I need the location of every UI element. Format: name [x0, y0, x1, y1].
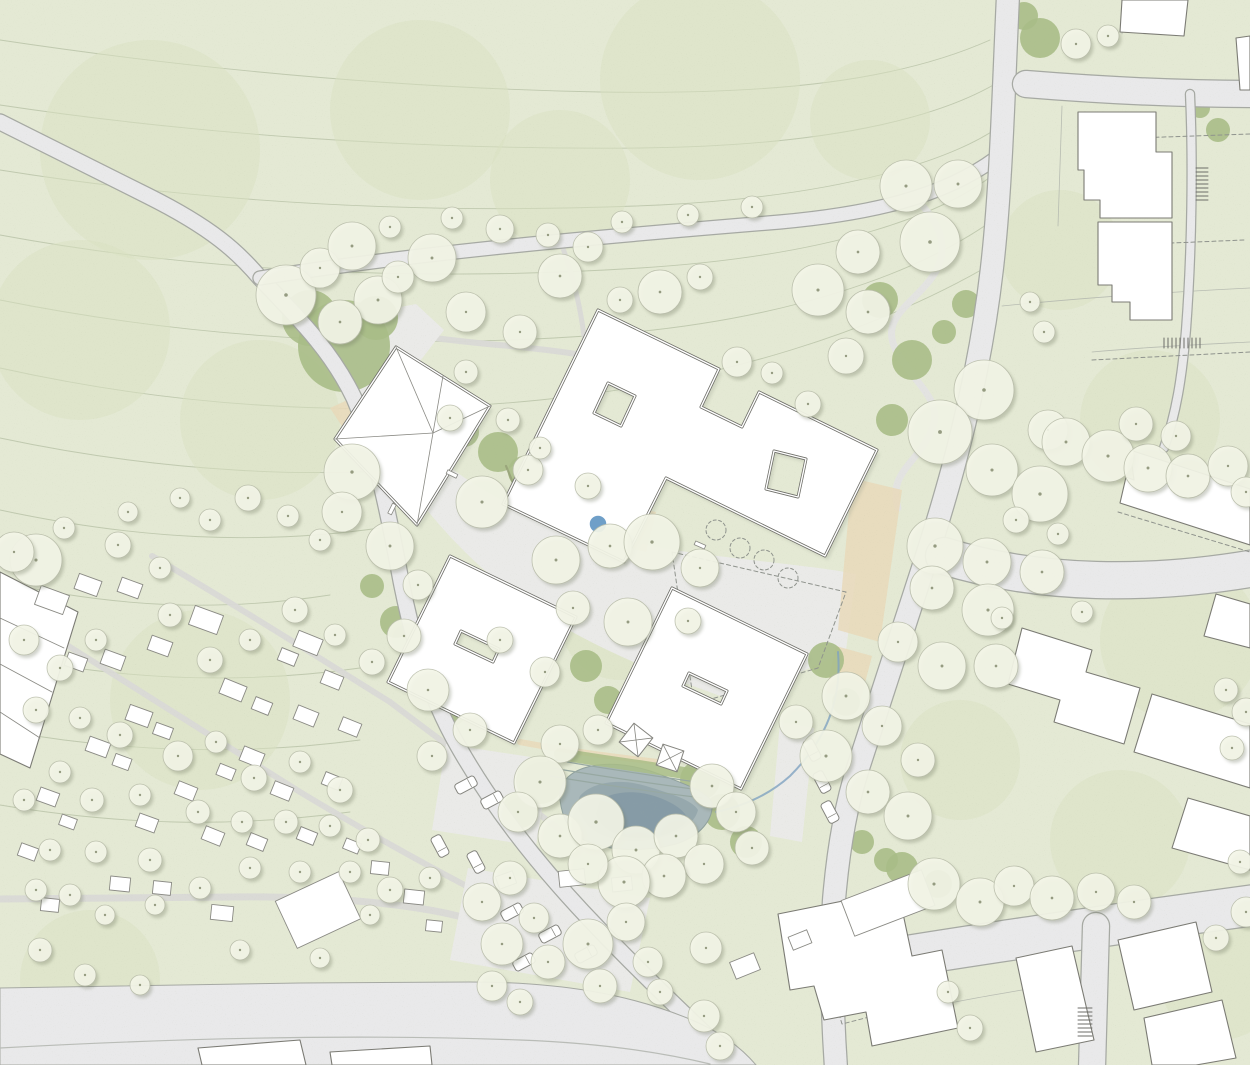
tree-trunk-dot	[519, 1001, 521, 1003]
tree-trunk-dot	[990, 468, 993, 471]
tree-trunk-dot	[249, 639, 251, 641]
tree-trunk-dot	[139, 794, 141, 796]
tree-trunk-dot	[555, 559, 558, 562]
tree-trunk-dot	[431, 257, 434, 260]
tree-trunk-dot	[397, 276, 399, 278]
tree-trunk-dot	[139, 984, 141, 986]
tree-trunk-dot	[499, 228, 501, 230]
tree-trunk-dot	[711, 785, 714, 788]
tree-trunk-dot	[95, 639, 97, 641]
tree-trunk-dot	[1147, 467, 1150, 470]
tree-trunk-dot	[594, 820, 597, 823]
tree-trunk-dot	[351, 245, 354, 248]
tree-trunk-dot	[371, 661, 373, 663]
tree-trunk-dot	[39, 949, 41, 951]
tree-trunk-dot	[881, 725, 883, 727]
tree-trunk-dot	[339, 789, 341, 791]
site-plan-canvas	[0, 0, 1250, 1065]
tree-trunk-dot	[986, 608, 989, 611]
tree-trunk-dot	[239, 949, 241, 951]
tree-trunk-dot	[59, 667, 61, 669]
tree-trunk-dot	[469, 729, 471, 731]
tree-trunk-dot	[559, 743, 561, 745]
tree-trunk-dot	[1001, 617, 1003, 619]
tree-trunk-dot	[95, 851, 97, 853]
tree-trunk-dot	[377, 299, 380, 302]
tree-trunk-dot	[1081, 611, 1083, 613]
tree-trunk-dot	[179, 497, 181, 499]
tree-trunk-dot	[367, 839, 369, 841]
tree-trunk-dot	[647, 961, 649, 963]
tree-trunk-dot	[154, 904, 156, 906]
tree-trunk-dot	[587, 943, 590, 946]
tree-trunk-dot	[69, 894, 71, 896]
tree-trunk-dot	[622, 880, 625, 883]
tree-trunk-dot	[209, 659, 211, 661]
tree-trunk-dot	[507, 419, 509, 421]
tree-trunk-dot	[538, 780, 541, 783]
tree-trunk-dot	[736, 361, 738, 363]
tree-trunk-dot	[350, 470, 353, 473]
building	[1120, 0, 1188, 36]
tree-trunk-dot	[795, 721, 797, 723]
tree-trunk-dot	[1041, 571, 1044, 574]
tree-trunk-dot	[587, 246, 589, 248]
tree-trunk-dot	[986, 561, 989, 564]
tree-trunk-dot	[957, 183, 960, 186]
shed	[109, 876, 130, 892]
tree-trunk-dot	[63, 527, 65, 529]
tree-trunk-dot	[982, 388, 986, 392]
tree-trunk-dot	[703, 1015, 705, 1017]
tree-trunk-dot	[1065, 441, 1068, 444]
tree-trunk-dot	[938, 430, 942, 434]
tree-trunk-dot	[719, 1045, 721, 1047]
tree-trunk-dot	[1015, 519, 1017, 521]
tree-trunk-dot	[699, 567, 701, 569]
tree-trunk-dot	[635, 849, 638, 852]
tree-trunk-dot	[559, 275, 562, 278]
tree-trunk-dot	[127, 511, 129, 513]
tree-trunk-dot	[547, 234, 549, 236]
tree-trunk-dot	[947, 991, 949, 993]
tree-trunk-dot	[59, 771, 61, 773]
tree-trunk-dot	[339, 321, 342, 324]
tree-trunk-dot	[299, 761, 301, 763]
tree-trunk-dot	[771, 372, 773, 374]
tree-trunk-dot	[931, 587, 934, 590]
tree-trunk-dot	[341, 511, 343, 513]
tree-trunk-dot	[1245, 911, 1247, 913]
tree-trunk-dot	[1038, 492, 1041, 495]
tree-trunk-dot	[928, 240, 932, 244]
tree-trunk-dot	[627, 621, 630, 624]
tree-trunk-dot	[247, 497, 249, 499]
tree-trunk-dot	[431, 755, 433, 757]
tree-trunk-dot	[1029, 301, 1031, 303]
tree-trunk-dot	[197, 811, 199, 813]
tree-trunk-dot	[35, 709, 37, 711]
tree-trunk-dot	[703, 863, 705, 865]
tree-trunk-dot	[897, 641, 899, 643]
tree-trunk-dot	[1227, 465, 1229, 467]
tree-trunk-dot	[209, 519, 211, 521]
tree-trunk-dot	[807, 403, 809, 405]
tree-trunk-dot	[119, 734, 121, 736]
tree-trunk-dot	[917, 759, 919, 761]
tree-trunk-dot	[480, 500, 483, 503]
tree-trunk-dot	[159, 567, 161, 569]
tree-trunk-dot	[907, 815, 910, 818]
tree-trunk-dot	[687, 620, 689, 622]
tree-trunk-dot	[941, 665, 944, 668]
tree-trunk-dot	[1013, 885, 1015, 887]
tree-trunk-dot	[169, 614, 171, 616]
tree-trunk-dot	[932, 882, 935, 885]
tree-trunk-dot	[979, 901, 982, 904]
tree-trunk-dot	[501, 943, 504, 946]
tree-trunk-dot	[299, 871, 301, 873]
tree-trunk-dot	[650, 540, 653, 543]
tree-trunk-dot	[687, 214, 689, 216]
tree-trunk-dot	[1043, 331, 1045, 333]
tree-trunk-dot	[389, 545, 392, 548]
site-plan-svg	[0, 0, 1250, 1065]
tree-trunk-dot	[587, 863, 589, 865]
tree-trunk-dot	[933, 544, 936, 547]
tree-trunk-dot	[199, 887, 201, 889]
tree-trunk-dot	[319, 267, 321, 269]
tree-trunk-dot	[499, 639, 501, 641]
tree-trunk-dot	[215, 741, 217, 743]
tree-trunk-dot	[287, 515, 289, 517]
tree-trunk-dot	[867, 791, 870, 794]
tree-trunk-dot	[334, 634, 336, 636]
tree-trunk-dot	[509, 877, 511, 879]
tree-trunk-dot	[1231, 747, 1233, 749]
tree-trunk-dot	[1175, 435, 1177, 437]
tree-trunk-dot	[319, 539, 321, 541]
tree-trunk-dot	[465, 311, 467, 313]
tree-trunk-dot	[904, 184, 907, 187]
tree-trunk-dot	[751, 206, 753, 208]
tree-trunk-dot	[659, 291, 662, 294]
tree-trunk-dot	[481, 901, 483, 903]
tree-trunk-dot	[699, 276, 701, 278]
tree-trunk-dot	[1095, 891, 1097, 893]
tree-trunk-dot	[995, 665, 998, 668]
shed	[403, 889, 424, 905]
tree-trunk-dot	[389, 226, 391, 228]
tree-trunk-dot	[285, 821, 287, 823]
tree-trunk-dot	[597, 729, 599, 731]
tree-trunk-dot	[527, 469, 529, 471]
tree-trunk-dot	[621, 221, 623, 223]
tree-trunk-dot	[429, 877, 431, 879]
tree-trunk-dot	[49, 849, 51, 851]
tree-trunk-dot	[845, 695, 848, 698]
tree-trunk-dot	[659, 991, 661, 993]
tree-trunk-dot	[533, 917, 535, 919]
tree-trunk-dot	[1187, 475, 1190, 478]
tree-trunk-dot	[619, 299, 621, 301]
tree-trunk-dot	[1225, 689, 1227, 691]
tree-trunk-dot	[587, 485, 589, 487]
tree-trunk-dot	[1133, 901, 1135, 903]
tree-trunk-dot	[1245, 711, 1247, 713]
tree-trunk-dot	[572, 607, 574, 609]
tree-trunk-dot	[349, 871, 351, 873]
tree-trunk-dot	[79, 717, 81, 719]
tree-trunk-dot	[84, 974, 86, 976]
tree-trunk-dot	[294, 609, 296, 611]
tree-trunk-dot	[449, 417, 451, 419]
tree-trunk-dot	[1051, 897, 1054, 900]
tree-trunk-dot	[417, 584, 419, 586]
tree-trunk-dot	[824, 754, 827, 757]
tree-trunk-dot	[816, 288, 819, 291]
tree-trunk-dot	[857, 251, 860, 254]
tree-trunk-dot	[735, 811, 737, 813]
tree-trunk-dot	[517, 811, 519, 813]
tree-trunk-dot	[1106, 454, 1109, 457]
shed	[370, 861, 389, 876]
tree-trunk-dot	[249, 867, 251, 869]
tree-trunk-dot	[13, 551, 15, 553]
tree-trunk-dot	[845, 355, 847, 357]
shed	[425, 920, 442, 933]
tree-trunk-dot	[1215, 937, 1217, 939]
tree-trunk-dot	[969, 1027, 971, 1029]
shed	[210, 904, 233, 921]
tree-trunk-dot	[104, 914, 106, 916]
tree-trunk-dot	[451, 217, 453, 219]
tree-trunk-dot	[427, 689, 430, 692]
tree-trunk-dot	[284, 293, 288, 297]
tree-trunk-dot	[599, 985, 601, 987]
tree-trunk-dot	[559, 835, 562, 838]
shed	[152, 881, 171, 896]
tree-trunk-dot	[625, 921, 627, 923]
tree-trunk-dot	[1075, 43, 1077, 45]
tree-trunk-dot	[329, 825, 331, 827]
tree-trunk-dot	[91, 799, 93, 801]
tree-trunk-dot	[253, 777, 255, 779]
tree-trunk-dot	[241, 821, 243, 823]
tree-trunk-dot	[369, 914, 371, 916]
tree-trunk-dot	[491, 985, 493, 987]
tree-trunk-dot	[544, 671, 546, 673]
tree-trunk-dot	[403, 635, 405, 637]
tree-trunk-dot	[1057, 533, 1059, 535]
tree-trunk-dot	[465, 371, 467, 373]
tree-trunk-dot	[177, 755, 179, 757]
tree-trunk-dot	[1245, 491, 1247, 493]
tree-trunk-dot	[663, 875, 666, 878]
tree-trunk-dot	[705, 947, 707, 949]
tree-trunk-dot	[23, 799, 25, 801]
tree-trunk-dot	[751, 847, 753, 849]
tree-trunk-dot	[867, 311, 870, 314]
tree-trunk-dot	[609, 545, 612, 548]
tree-trunk-dot	[547, 961, 549, 963]
tree-trunk-dot	[23, 639, 25, 641]
tree-trunk-dot	[675, 835, 678, 838]
tree-trunk-dot	[389, 889, 391, 891]
tree-trunk-dot	[149, 859, 151, 861]
tree-trunk-dot	[319, 957, 321, 959]
tree-trunk-dot	[1135, 423, 1137, 425]
tree-trunk-dot	[1239, 861, 1241, 863]
tree-trunk-dot	[539, 447, 541, 449]
tree-trunk-dot	[1107, 35, 1109, 37]
tree-trunk-dot	[117, 544, 119, 546]
tree-trunk-dot	[519, 331, 521, 333]
tree-trunk-dot	[35, 889, 37, 891]
